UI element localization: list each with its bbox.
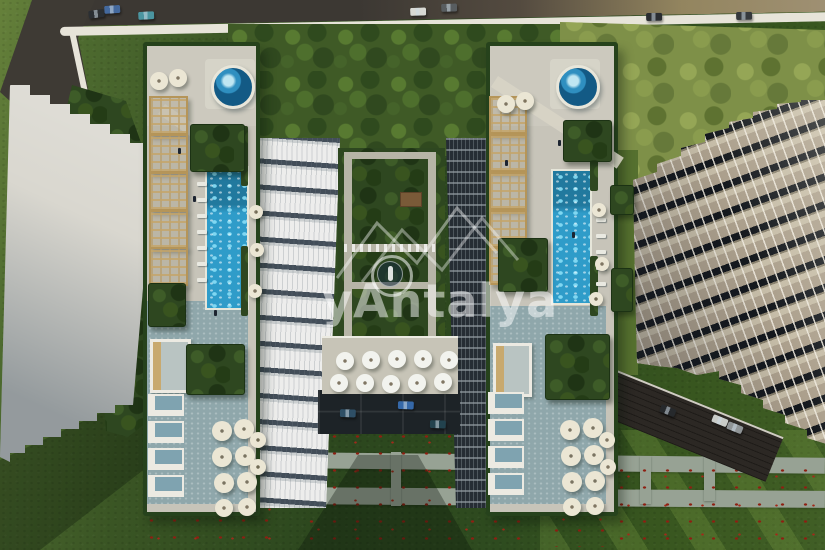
umbrella [250,243,264,257]
central-courtyard [338,148,445,340]
pergola [489,172,527,210]
pergola [149,134,188,173]
lounger [197,230,207,234]
umbrella [248,284,262,298]
umbrella [562,472,582,492]
umbrella [599,432,615,448]
pergola [489,134,527,172]
cabana [148,448,184,470]
garden [563,120,612,162]
umbrella [589,292,603,306]
umbrella [586,497,604,515]
lounger [197,198,207,202]
umbrella [237,472,257,492]
umbrella [212,447,232,467]
garden [611,268,633,312]
cabana [148,475,184,497]
garden [190,124,245,172]
umbrella [560,420,580,440]
cabana [148,421,184,443]
pergola [149,172,188,211]
flowers [610,462,825,548]
hedge-strip [241,246,248,316]
umbrella [330,374,348,392]
garden [610,185,634,215]
umbrella [382,375,400,393]
umbrella [356,374,374,392]
umbrella [214,473,234,493]
person [193,196,196,202]
lounger [596,282,606,286]
aerial-complex-render: yAntalya [0,0,825,550]
umbrella [238,498,256,516]
lounger [197,182,207,186]
courtyard-crosswalk [344,244,436,252]
umbrella [600,459,616,475]
garden [545,334,610,400]
umbrella [150,72,168,90]
tower-left-inner-facade [252,138,340,508]
garden [148,283,186,327]
umbrella [440,351,458,369]
umbrella [215,499,233,517]
courtyard-path-top [344,152,436,159]
umbrella [212,421,232,441]
umbrella [169,69,187,87]
lounger [197,278,207,282]
umbrella [592,203,606,217]
car [441,3,457,12]
car [340,409,356,418]
lounger [596,218,606,222]
roof-cabana-kiosk [493,343,532,397]
plunge-pool [556,65,600,109]
umbrella [250,432,266,448]
cabana [488,473,524,495]
umbrella [434,373,452,391]
umbrella [595,257,609,271]
pergola [149,96,188,135]
pergola [149,210,188,249]
umbrella [250,459,266,475]
person [505,160,508,166]
umbrella [408,374,426,392]
umbrella [585,471,605,491]
person [214,310,217,316]
cabana [148,394,184,416]
pergola [149,247,188,286]
garden [186,344,245,395]
car [104,5,121,14]
lounger [596,234,606,238]
person [558,140,561,146]
umbrella [414,350,432,368]
roof-cabana-kiosk [150,339,191,393]
cabana [488,419,524,441]
umbrella [249,205,263,219]
car [646,13,662,21]
cabana [488,446,524,468]
car [736,12,752,20]
umbrella [362,351,380,369]
umbrella [388,350,406,368]
umbrella [516,92,534,110]
courtyard-path-lower [344,282,436,289]
lounger [197,214,207,218]
person [178,148,181,154]
umbrella [561,446,581,466]
courtyard-planter [400,192,422,207]
garden [498,238,548,292]
plunge-pool [211,65,255,109]
lounger [197,262,207,266]
umbrella [497,95,515,113]
lounger [596,250,606,254]
lounger [197,246,207,250]
cabana [488,392,524,414]
umbrella [563,498,581,516]
car [398,401,414,410]
umbrella [336,352,354,370]
car [430,420,446,429]
person [572,232,575,238]
car [410,7,426,16]
car [138,11,154,20]
